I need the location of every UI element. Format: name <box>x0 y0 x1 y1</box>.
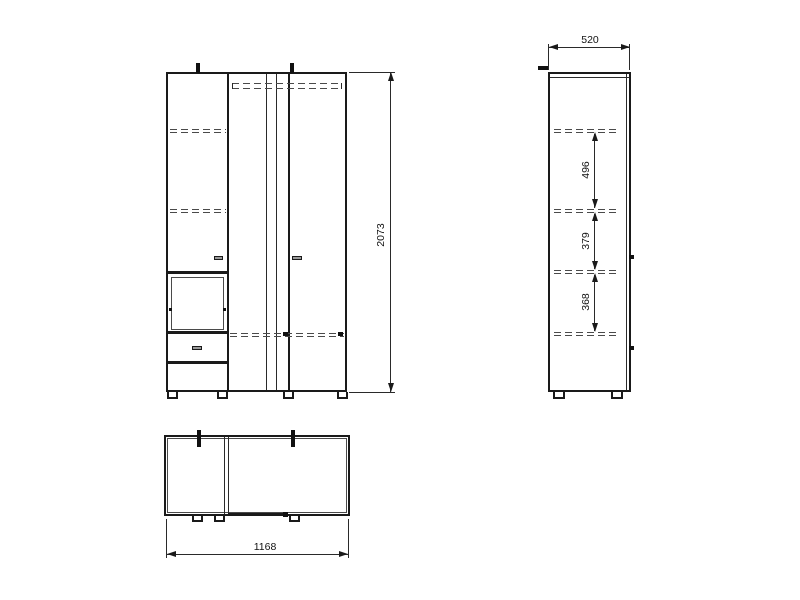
side-hidden-shelf-line <box>554 129 618 130</box>
dimension-label-depth: 520 <box>569 34 611 46</box>
dimension-label-gap-bottom: 368 <box>580 281 592 323</box>
side-hidden-shelf-line <box>554 270 618 271</box>
side-hidden-shelf-line <box>554 332 618 333</box>
hanging-rail-end-cap <box>341 83 342 89</box>
foot <box>611 392 623 399</box>
mounting-peg <box>197 430 201 447</box>
top-front-edge-thick-segment <box>228 513 288 516</box>
left-door-handle <box>214 256 223 260</box>
front-right-divider-panel <box>288 74 290 390</box>
front-open-compartment <box>171 277 224 330</box>
foot <box>192 516 203 522</box>
wall-peg <box>538 66 548 70</box>
foot <box>283 392 294 399</box>
front-left-divider-panel <box>227 74 229 390</box>
side-hidden-shelf-line <box>554 212 618 213</box>
side-hidden-shelf-line <box>554 209 618 210</box>
front-door-gap-line-1 <box>266 74 267 390</box>
dimension-line-height <box>390 73 391 392</box>
foot <box>217 392 228 399</box>
arrowhead-down-icon <box>592 261 598 270</box>
drawer-handle <box>192 346 202 350</box>
foot <box>337 392 348 399</box>
mounting-peg <box>291 430 295 447</box>
arrowhead-up-icon <box>592 132 598 141</box>
extension-line <box>349 392 395 393</box>
arrowhead-up-icon <box>592 273 598 282</box>
top-divider-wall-line <box>228 437 229 514</box>
foot <box>289 516 300 522</box>
handle-edge-mark <box>629 255 634 259</box>
front-door-gap-line-2 <box>276 74 277 390</box>
arrowhead-down-icon <box>388 383 394 392</box>
hanging-rail-dashed-top <box>232 83 342 84</box>
hinge-pin-dot <box>169 308 172 311</box>
front-hidden-shelf-line <box>170 129 226 130</box>
mounting-peg <box>290 63 294 73</box>
front-hidden-shelf-line <box>170 132 226 133</box>
top-divider-wall-line <box>224 437 225 514</box>
arrowhead-right-icon <box>339 551 348 557</box>
top-view-inner-wall <box>167 438 347 513</box>
front-view-outline <box>166 72 347 392</box>
arrowhead-down-icon <box>592 323 598 332</box>
dimension-label-width: 1168 <box>234 541 296 553</box>
arrowhead-up-icon <box>592 212 598 221</box>
front-open-shelf-bottom-edge <box>168 331 228 334</box>
arrowhead-left-icon <box>549 44 558 50</box>
arrowhead-right-icon <box>621 44 630 50</box>
side-hidden-shelf-line <box>554 273 618 274</box>
side-top-panel-line <box>550 77 629 78</box>
wardrobe-technical-drawing: 2073 520 496 379 368 1 <box>0 0 800 600</box>
foot <box>167 392 178 399</box>
dimension-label-gap-middle: 379 <box>580 220 592 262</box>
side-door-front-line <box>626 74 627 390</box>
dimension-label-height: 2073 <box>375 214 387 256</box>
side-hidden-shelf-line <box>554 132 618 133</box>
front-hidden-shelf-line <box>170 212 226 213</box>
mounting-peg <box>196 63 200 73</box>
foot <box>553 392 565 399</box>
right-door-handle <box>292 256 302 260</box>
front-hidden-shelf-line <box>170 209 226 210</box>
hanging-rail-dashed-bottom <box>232 88 342 89</box>
foot <box>214 516 225 522</box>
extension-line <box>348 519 349 558</box>
arrowhead-left-icon <box>167 551 176 557</box>
front-drawer-divider-edge <box>168 361 228 364</box>
arrowhead-up-icon <box>388 72 394 81</box>
dimension-line-depth <box>549 47 630 48</box>
shelf-support-mark <box>338 332 343 336</box>
dimension-label-gap-top: 496 <box>580 149 592 191</box>
handle-edge-mark <box>629 346 634 350</box>
edge-mark <box>283 512 288 517</box>
shelf-support-mark <box>283 332 288 336</box>
hinge-pin-dot <box>223 308 226 311</box>
front-hidden-shelf-line <box>230 336 344 337</box>
front-left-door-bottom-edge <box>168 271 228 274</box>
hanging-rail-end-cap <box>232 83 233 89</box>
side-hidden-shelf-line <box>554 335 618 336</box>
arrowhead-down-icon <box>592 199 598 208</box>
dimension-line-width <box>167 554 348 555</box>
dimension-line-gap-top <box>594 134 595 208</box>
